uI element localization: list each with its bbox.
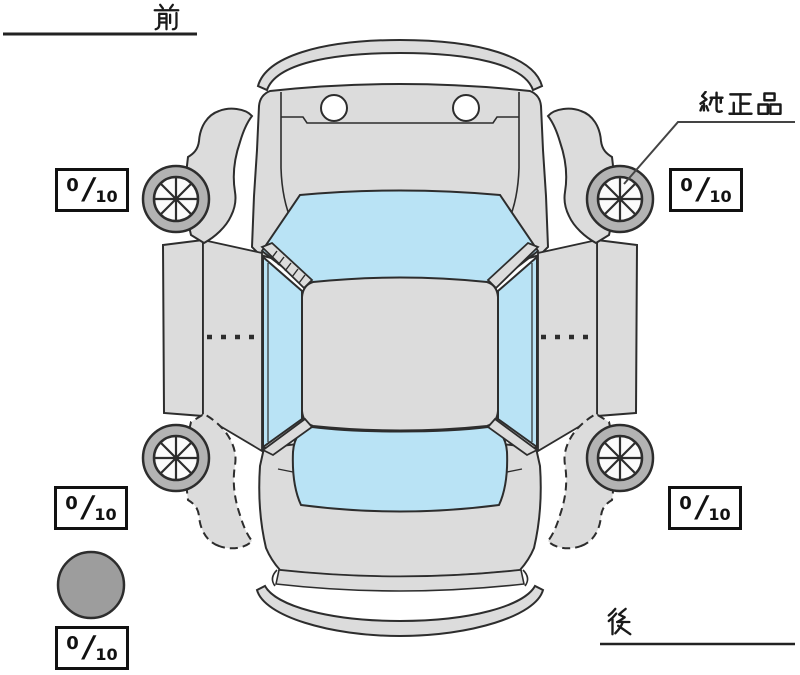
tread-value: 0 bbox=[66, 633, 79, 654]
side-window-right bbox=[498, 257, 537, 447]
rear-window bbox=[293, 427, 507, 512]
tread-slash: / bbox=[83, 490, 94, 524]
wheel-rear-left bbox=[143, 425, 209, 491]
tread-value: 0 bbox=[65, 493, 78, 514]
tread-depth-box-spare: 0 / 10 bbox=[55, 626, 129, 670]
wheel-front-right bbox=[587, 166, 653, 232]
tread-max: 10 bbox=[709, 187, 731, 206]
tread-depth-box-front-right: 0 / 10 bbox=[669, 168, 743, 212]
kanji-hin-icon bbox=[756, 91, 783, 118]
tread-max: 10 bbox=[94, 505, 116, 524]
tread-slash: / bbox=[84, 172, 95, 206]
front-bumper bbox=[258, 40, 542, 90]
tread-slash: / bbox=[697, 490, 708, 524]
kanji-sei-icon bbox=[727, 91, 754, 118]
tread-value: 0 bbox=[680, 175, 693, 196]
spare-tire-circle bbox=[58, 552, 124, 618]
rocker-panel-left bbox=[163, 240, 203, 416]
front-label: 前 bbox=[152, 3, 181, 32]
tread-max: 10 bbox=[708, 505, 730, 524]
tread-max: 10 bbox=[95, 645, 117, 664]
side-window-left bbox=[263, 257, 302, 447]
rear-label: 後 bbox=[605, 607, 635, 637]
wheel-rear-right bbox=[587, 425, 653, 491]
tread-max: 10 bbox=[95, 187, 117, 206]
tread-depth-box-rear-left: 0 / 10 bbox=[54, 486, 128, 530]
wheel-front-left bbox=[143, 166, 209, 232]
car-top-view-diagram bbox=[0, 0, 800, 675]
tread-value: 0 bbox=[66, 175, 79, 196]
headlight-right bbox=[453, 95, 479, 121]
tread-slash: / bbox=[84, 630, 95, 664]
car-roof bbox=[302, 278, 498, 431]
genuine-part-label: 純正品 bbox=[698, 91, 783, 118]
vehicle-condition-diagram: 前 後 純正品 bbox=[0, 0, 800, 675]
tread-depth-box-front-left: 0 / 10 bbox=[55, 168, 129, 212]
kanji-front-icon bbox=[152, 3, 181, 32]
kanji-rear-icon bbox=[605, 607, 635, 637]
tread-depth-box-rear-right: 0 / 10 bbox=[668, 486, 742, 530]
rocker-panel-right bbox=[597, 240, 637, 416]
kanji-jun-icon bbox=[698, 91, 725, 118]
rear-bumper bbox=[257, 586, 543, 636]
tread-slash: / bbox=[698, 172, 709, 206]
headlight-left bbox=[321, 95, 347, 121]
tread-value: 0 bbox=[679, 493, 692, 514]
